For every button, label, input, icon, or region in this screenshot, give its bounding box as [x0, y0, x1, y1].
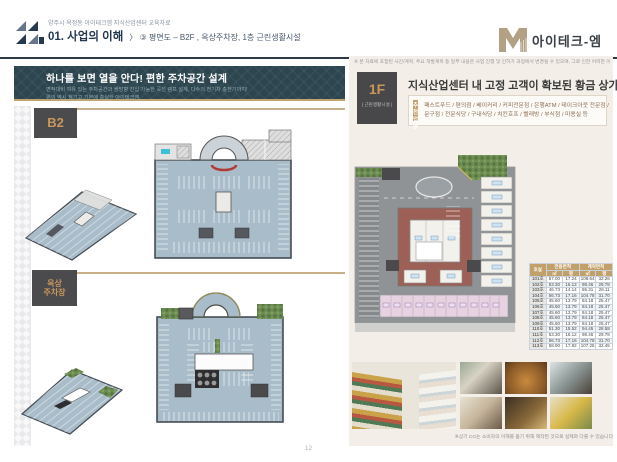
shops-tag: 추천 업종 [413, 100, 418, 121]
dining-couple-photo [460, 397, 502, 429]
burger-photo [550, 397, 592, 429]
page-title: 01. 사업의 이해〉 ③ 평면도 – B2F , 옥상주차장, 1층 근린생활… [48, 27, 301, 45]
rooftop-iso-view [14, 356, 129, 438]
floor-badge: 1F | 근린생활시설 | [357, 72, 397, 124]
eyebrow-text: 양주시 옥정동 아이테크엠 지식산업센터 교육자료 [48, 18, 171, 27]
roof-section-rule [34, 272, 345, 274]
presentation-slide: 양주시 옥정동 아이테크엠 지식산업센터 교육자료 01. 사업의 이해〉 ③ … [0, 0, 617, 462]
convenience-store-photo [352, 362, 456, 429]
roof-section-label: 옥상 주차장 [32, 270, 77, 306]
roof-label-line2: 주차장 [32, 288, 77, 297]
brand-name: 아이테크-엠 [532, 31, 602, 50]
breadcrumb: 〉 ③ 평면도 – B2F , 옥상주차장, 1층 근린생활시설 [129, 33, 300, 42]
header-mark-icon [16, 20, 44, 46]
left-subline-2: 편의 역시 챙기고 기본에 충실한 아이테크엠 [46, 95, 345, 102]
floor-badge-label: 1F [357, 81, 397, 97]
shops-list: 패스트푸드 / 편의점 / 베이커리 / 커피전문점 / 은행ATM / 테이크… [424, 102, 609, 120]
page-number: 12 [0, 445, 617, 452]
disclaimer-text: ※ 본 자료에 포함된 사진/계획, 주요 개발계획 등 일부 내용은 사업 진… [354, 58, 610, 65]
shops-tag-line2: 업종 [413, 117, 418, 131]
store-fridge-texture [419, 370, 456, 429]
table-header-unit: 호실 [530, 264, 547, 277]
b2-section-rule [34, 108, 345, 110]
shops-list-line2: 문구점 / 전문식당 / 구내식당 / 치킨호프 / 빨래방 / 부식점 / 미… [424, 111, 609, 120]
b2-floor-plan [153, 118, 293, 260]
bakery-photo [505, 362, 547, 394]
table-row: 113호58.9017.82107.2532.45 [530, 344, 613, 350]
roof-label-line1: 옥상 [32, 279, 77, 288]
rooftop-floor-plan [153, 284, 287, 426]
left-subline-1: 면적대비 여유 있는 주차공간과 쌍방향 진입 가능한 곡선 램프 설계, 다수… [46, 87, 345, 94]
photo-caption: ※상기 CG는 소비자의 이해를 돕기 위해 제작된 것으로 실제와 다를 수 … [352, 433, 613, 440]
first-floor-plan [354, 150, 516, 336]
barista-photo [550, 362, 592, 394]
shop-photo-grid [460, 362, 592, 429]
left-headline-banner: 하나를 보면 열을 안다! 편한 주차공간 설계 면적대비 여유 있는 주차공간… [14, 66, 345, 101]
brand-logo-icon [497, 22, 529, 54]
right-headline: 지식산업센터 내 고정 고객이 확보된 황금 상가 [408, 77, 617, 93]
shops-box: 추천 업종 패스트푸드 / 편의점 / 베이커리 / 커피전문점 / 은행ATM… [408, 95, 607, 126]
b2-iso-view [16, 176, 146, 264]
b2-section-label: B2 [34, 108, 77, 138]
shops-list-line1: 패스트푸드 / 편의점 / 베이커리 / 커피전문점 / 은행ATM / 테이크… [424, 102, 609, 111]
restaurant-photo [505, 397, 547, 429]
unit-area-table: 호실 전용면적 계약면적 ㎡ 평 ㎡ 평 101호57.0017.24106.6… [529, 263, 613, 350]
left-headline: 하나를 보면 열을 안다! 편한 주차공간 설계 [46, 70, 345, 85]
section-title: 01. 사업의 이해 [48, 31, 123, 43]
cafe-counter-photo [460, 362, 502, 394]
store-shelf-texture [352, 372, 402, 429]
area-table-body: 101호57.0017.24106.6432.26102호53.3016.129… [530, 277, 613, 350]
shops-tag-line1: 추천 [413, 103, 418, 117]
floor-badge-sub: | 근린생활시설 | [357, 102, 397, 108]
